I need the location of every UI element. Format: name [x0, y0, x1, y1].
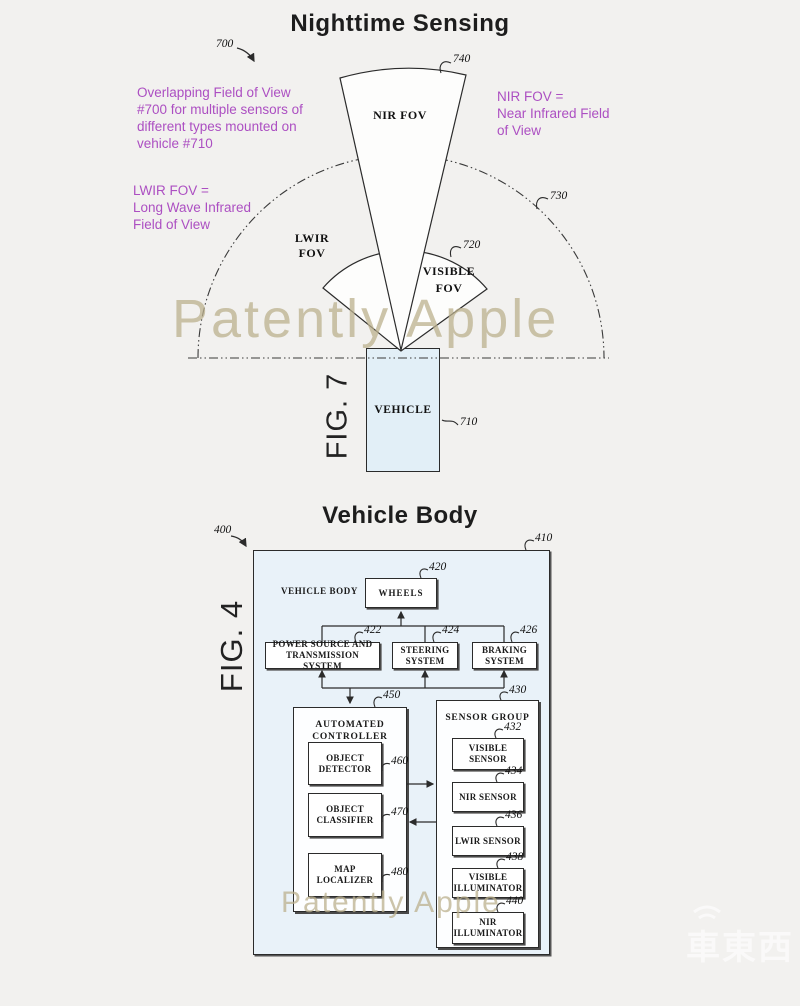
vehicle-body-label: VEHICLE BODY [281, 586, 358, 596]
annotation-line: LWIR FOV = [133, 182, 251, 199]
annotation-line: NIR FOV = [497, 88, 610, 105]
fig7-annotation-overlap: Overlapping Field of View #700 for multi… [137, 84, 303, 152]
ref-434-leader [496, 773, 504, 782]
patently-apple-watermark-top: Patently Apple [172, 288, 559, 350]
ref-430-leader [500, 692, 508, 700]
ref-410-leader [525, 540, 534, 550]
annotation-line: of View [497, 122, 610, 139]
patent-figure-page: Nighttime Sensing Overlapping Field of V… [0, 0, 800, 1006]
ref-460: 460 [391, 755, 408, 767]
connector-top-drops [322, 626, 504, 642]
ref-432-leader [495, 729, 503, 738]
ref-460-leader [382, 763, 390, 771]
chedongxi-logo-watermark: 車東西 [686, 920, 794, 969]
fig4-title: Vehicle Body [0, 502, 800, 530]
ref-730: 730 [550, 190, 567, 202]
logo-signal-arcs-icon [694, 907, 720, 918]
ref-710: 710 [460, 416, 477, 428]
ref-730-leader [537, 198, 548, 209]
fig4-label: FIG. 4 [214, 600, 250, 692]
ref-710-leader [442, 420, 458, 425]
ref-700: 700 [216, 38, 233, 50]
ref-426: 426 [520, 624, 537, 636]
ref-420-leader [420, 569, 428, 578]
annotation-line: vehicle #710 [137, 135, 303, 152]
ref-424: 424 [442, 624, 459, 636]
ref-426-leader [511, 632, 519, 642]
ref-434: 434 [505, 765, 522, 777]
ref-438-leader [497, 859, 505, 868]
patently-apple-watermark-bottom: Patently Apple [281, 886, 501, 920]
ref-480: 480 [391, 866, 408, 878]
ref-410: 410 [535, 532, 552, 544]
ref-740: 740 [453, 53, 470, 65]
ref-420: 420 [429, 561, 446, 573]
ref-480-leader [382, 874, 390, 882]
annotation-line: #700 for multiple sensors of [137, 101, 303, 118]
annotation-line: different types mounted on [137, 118, 303, 135]
ref-422-leader [355, 632, 363, 642]
annotation-line: Field of View [133, 216, 251, 233]
annotation-line: Overlapping Field of View [137, 84, 303, 101]
ref-470-leader [382, 814, 390, 822]
ref-436-leader [496, 817, 504, 826]
fig7-label: FIG. 7 [322, 373, 355, 460]
ref-720: 720 [463, 239, 480, 251]
annotation-line: Near Infrared Field [497, 105, 610, 122]
fig7-annotation-nir: NIR FOV = Near Infrared Field of View [497, 88, 610, 139]
ref-700-arrow [237, 48, 254, 61]
ref-400-arrow [231, 536, 246, 546]
nir-fov-label: NIR FOV [372, 108, 428, 123]
ref-424-leader [433, 632, 441, 642]
ref-430: 430 [509, 684, 526, 696]
ref-432: 432 [504, 721, 521, 733]
ref-438: 438 [506, 851, 523, 863]
lwir-fov-label: LWIR FOV [280, 231, 344, 261]
ref-450-leader [374, 697, 382, 707]
fig7-title: Nighttime Sensing [0, 10, 800, 38]
ref-450: 450 [383, 689, 400, 701]
ref-440: 440 [506, 895, 523, 907]
ref-436: 436 [505, 809, 522, 821]
ref-422: 422 [364, 624, 381, 636]
ref-470: 470 [391, 806, 408, 818]
fig7-annotation-lwir: LWIR FOV = Long Wave Infrared Field of V… [133, 182, 251, 233]
ref-720-leader [450, 247, 461, 257]
visible-fov-label-line1: VISIBLE [420, 264, 478, 279]
ref-400: 400 [214, 524, 231, 536]
annotation-line: Long Wave Infrared [133, 199, 251, 216]
